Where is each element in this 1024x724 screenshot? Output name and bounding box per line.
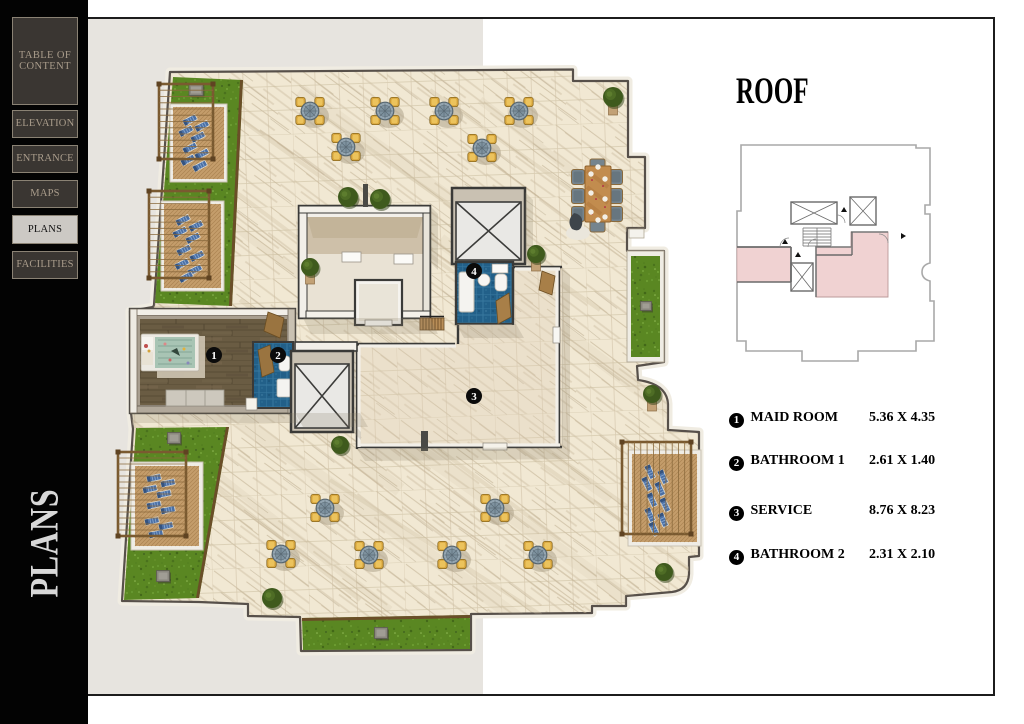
svg-text:3: 3 xyxy=(471,391,477,403)
svg-text:1: 1 xyxy=(211,350,217,362)
svg-text:4: 4 xyxy=(471,266,477,278)
svg-text:2: 2 xyxy=(275,350,281,362)
